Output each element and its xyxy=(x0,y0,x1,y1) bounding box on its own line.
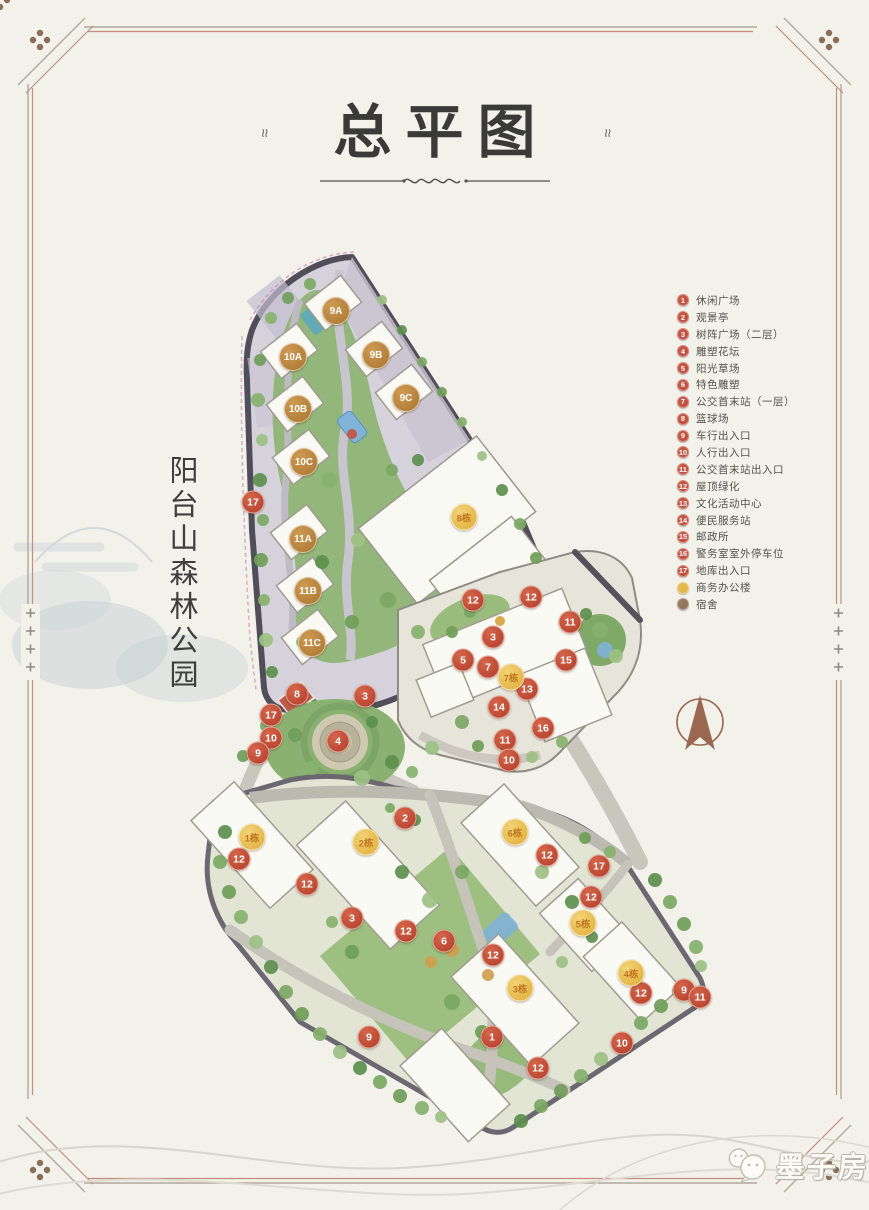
map-marker-badge: 4 xyxy=(327,730,350,753)
legend-item: 商务办公楼 xyxy=(677,579,795,596)
map-marker-badge: 17 xyxy=(588,855,611,878)
building-badge: 11C xyxy=(298,629,326,657)
map-marker-badge: 12 xyxy=(536,844,559,867)
map-marker-badge: 12 xyxy=(520,586,543,609)
watermark: 墨子房 xyxy=(725,1144,869,1186)
map-marker-badge: 6 xyxy=(433,930,456,953)
legend-badge: 11 xyxy=(677,463,689,475)
legend-item: 10 人行出入口 xyxy=(677,444,795,461)
building-badge: 7栋 xyxy=(498,664,525,691)
map-marker-badge: 11 xyxy=(559,611,582,634)
legend-item: 16 警务室室外停车位 xyxy=(677,545,795,562)
map-marker-badge: 10 xyxy=(611,1032,634,1055)
legend-badge: 4 xyxy=(677,345,689,357)
legend-badge: 12 xyxy=(677,480,689,492)
legend-label: 阳光草场 xyxy=(696,361,740,376)
legend-badge: 3 xyxy=(677,328,689,340)
legend-item: 5 阳光草场 xyxy=(677,360,795,377)
legend-label: 宿舍 xyxy=(696,597,718,612)
legend-label: 休闲广场 xyxy=(696,293,740,308)
title-block: ≈ 总平图 ≈ xyxy=(0,98,869,190)
map-marker-badge: 14 xyxy=(488,696,511,719)
legend-badge: 8 xyxy=(677,413,689,425)
map-marker-badge: 7 xyxy=(477,656,500,679)
legend-label: 人行出入口 xyxy=(696,445,751,460)
legend-badge: 2 xyxy=(677,311,689,323)
north-arrow-icon xyxy=(666,692,734,767)
map-marker-badge: 12 xyxy=(296,873,319,896)
legend-badge: 15 xyxy=(677,531,689,543)
legend-item: 14 便民服务站 xyxy=(677,512,795,529)
legend-badge: 10 xyxy=(677,446,689,458)
building-badge: 9A xyxy=(322,297,350,325)
map-marker-badge: 12 xyxy=(462,589,485,612)
legend-badge: 17 xyxy=(677,565,689,577)
legend-item: 3 树阵广场（二层） xyxy=(677,326,795,343)
map-marker-badge: 9 xyxy=(358,1026,381,1049)
map-marker-badge: 15 xyxy=(555,649,578,672)
legend-label: 树阵广场（二层） xyxy=(696,327,784,342)
legend-item: 12 屋顶绿化 xyxy=(677,478,795,495)
building-badge: 9B xyxy=(362,341,390,369)
legend-list: 1 休闲广场 2 观景亭 3 树阵广场（二层） 4 雕塑花坛 5 阳光草场 6 … xyxy=(677,292,795,613)
building-badge: 2栋 xyxy=(353,829,380,856)
map-marker-badge: 2 xyxy=(394,807,417,830)
building-badge: 1栋 xyxy=(239,824,266,851)
page-title: 总平图 xyxy=(319,98,549,168)
legend-item: 宿舍 xyxy=(677,596,795,613)
watermark-text: 墨子房 xyxy=(775,1144,869,1186)
legend-item: 2 观景亭 xyxy=(677,309,795,326)
master-plan-poster: 1783171094121211357151314161110212123126… xyxy=(0,0,869,1210)
legend-label: 文化活动中心 xyxy=(696,496,762,511)
legend-item: 11 公交首末站出入口 xyxy=(677,461,795,478)
legend-badge xyxy=(677,582,689,594)
map-marker-badge: 17 xyxy=(242,491,265,514)
map-marker-badge: 16 xyxy=(532,717,555,740)
legend-label: 商务办公楼 xyxy=(696,580,751,595)
legend-badge: 6 xyxy=(677,379,689,391)
title-ornament-left: ≈ xyxy=(255,128,271,137)
legend-badge: 16 xyxy=(677,548,689,560)
legend: 1 休闲广场 2 观景亭 3 树阵广场（二层） 4 雕塑花坛 5 阳光草场 6 … xyxy=(677,292,795,613)
legend-badge: 7 xyxy=(677,396,689,408)
legend-item: 7 公交首末站（一层） xyxy=(677,393,795,410)
legend-label: 公交首末站出入口 xyxy=(696,462,784,477)
legend-label: 观景亭 xyxy=(696,310,729,325)
building-badge: 6栋 xyxy=(502,819,529,846)
map-marker-badge: 10 xyxy=(498,749,521,772)
legend-badge xyxy=(677,598,689,610)
map-marker-badge: 9 xyxy=(247,742,270,765)
title-ornament-right: ≈ xyxy=(598,128,614,137)
legend-label: 雕塑花坛 xyxy=(696,344,740,359)
legend-label: 地库出入口 xyxy=(696,563,751,578)
wechat-icon xyxy=(725,1146,771,1184)
building-badge: 10A xyxy=(279,343,307,371)
building-badge: 4栋 xyxy=(618,960,645,987)
building-badge: 5栋 xyxy=(570,910,597,937)
map-marker-badge: 12 xyxy=(482,944,505,967)
legend-item: 13 文化活动中心 xyxy=(677,495,795,512)
legend-label: 车行出入口 xyxy=(696,428,751,443)
legend-label: 特色雕塑 xyxy=(696,377,740,392)
legend-label: 屋顶绿化 xyxy=(696,479,740,494)
building-badge: 9C xyxy=(392,384,420,412)
map-marker-badge: 3 xyxy=(341,907,364,930)
map-marker-badge: 12 xyxy=(228,848,251,871)
legend-badge: 1 xyxy=(677,294,689,306)
building-badge: 10C xyxy=(290,448,318,476)
legend-item: 17 地库出入口 xyxy=(677,562,795,579)
legend-item: 6 特色雕塑 xyxy=(677,376,795,393)
legend-item: 1 休闲广场 xyxy=(677,292,795,309)
map-marker-badge: 12 xyxy=(527,1057,550,1080)
legend-item: 9 车行出入口 xyxy=(677,427,795,444)
map-marker-badge: 11 xyxy=(689,986,712,1009)
park-label: 阳台山森林公园 xyxy=(160,455,202,693)
legend-badge: 13 xyxy=(677,497,689,509)
legend-label: 公交首末站（一层） xyxy=(696,394,795,409)
title-divider xyxy=(320,172,550,190)
building-badge: 11B xyxy=(294,577,322,605)
building-badge: 8栋 xyxy=(451,504,478,531)
map-marker-badge: 12 xyxy=(395,920,418,943)
legend-label: 警务室室外停车位 xyxy=(696,546,784,561)
building-badge: 3栋 xyxy=(507,975,534,1002)
map-marker-badge: 17 xyxy=(260,704,283,727)
legend-badge: 5 xyxy=(677,362,689,374)
legend-badge: 14 xyxy=(677,514,689,526)
building-badge: 10B xyxy=(284,395,312,423)
legend-item: 15 邮政所 xyxy=(677,528,795,545)
building-badge: 11A xyxy=(289,525,317,553)
legend-item: 8 篮球场 xyxy=(677,410,795,427)
map-marker-badge: 3 xyxy=(482,626,505,649)
map-marker-badge: 8 xyxy=(286,683,309,706)
map-marker-badge: 1 xyxy=(481,1026,504,1049)
map-marker-badge: 12 xyxy=(580,886,603,909)
map-marker-badge: 3 xyxy=(354,685,377,708)
legend-badge: 9 xyxy=(677,430,689,442)
legend-item: 4 雕塑花坛 xyxy=(677,343,795,360)
legend-label: 邮政所 xyxy=(696,529,729,544)
map-marker-badge: 5 xyxy=(452,649,475,672)
legend-label: 便民服务站 xyxy=(696,513,751,528)
legend-label: 篮球场 xyxy=(696,411,729,426)
